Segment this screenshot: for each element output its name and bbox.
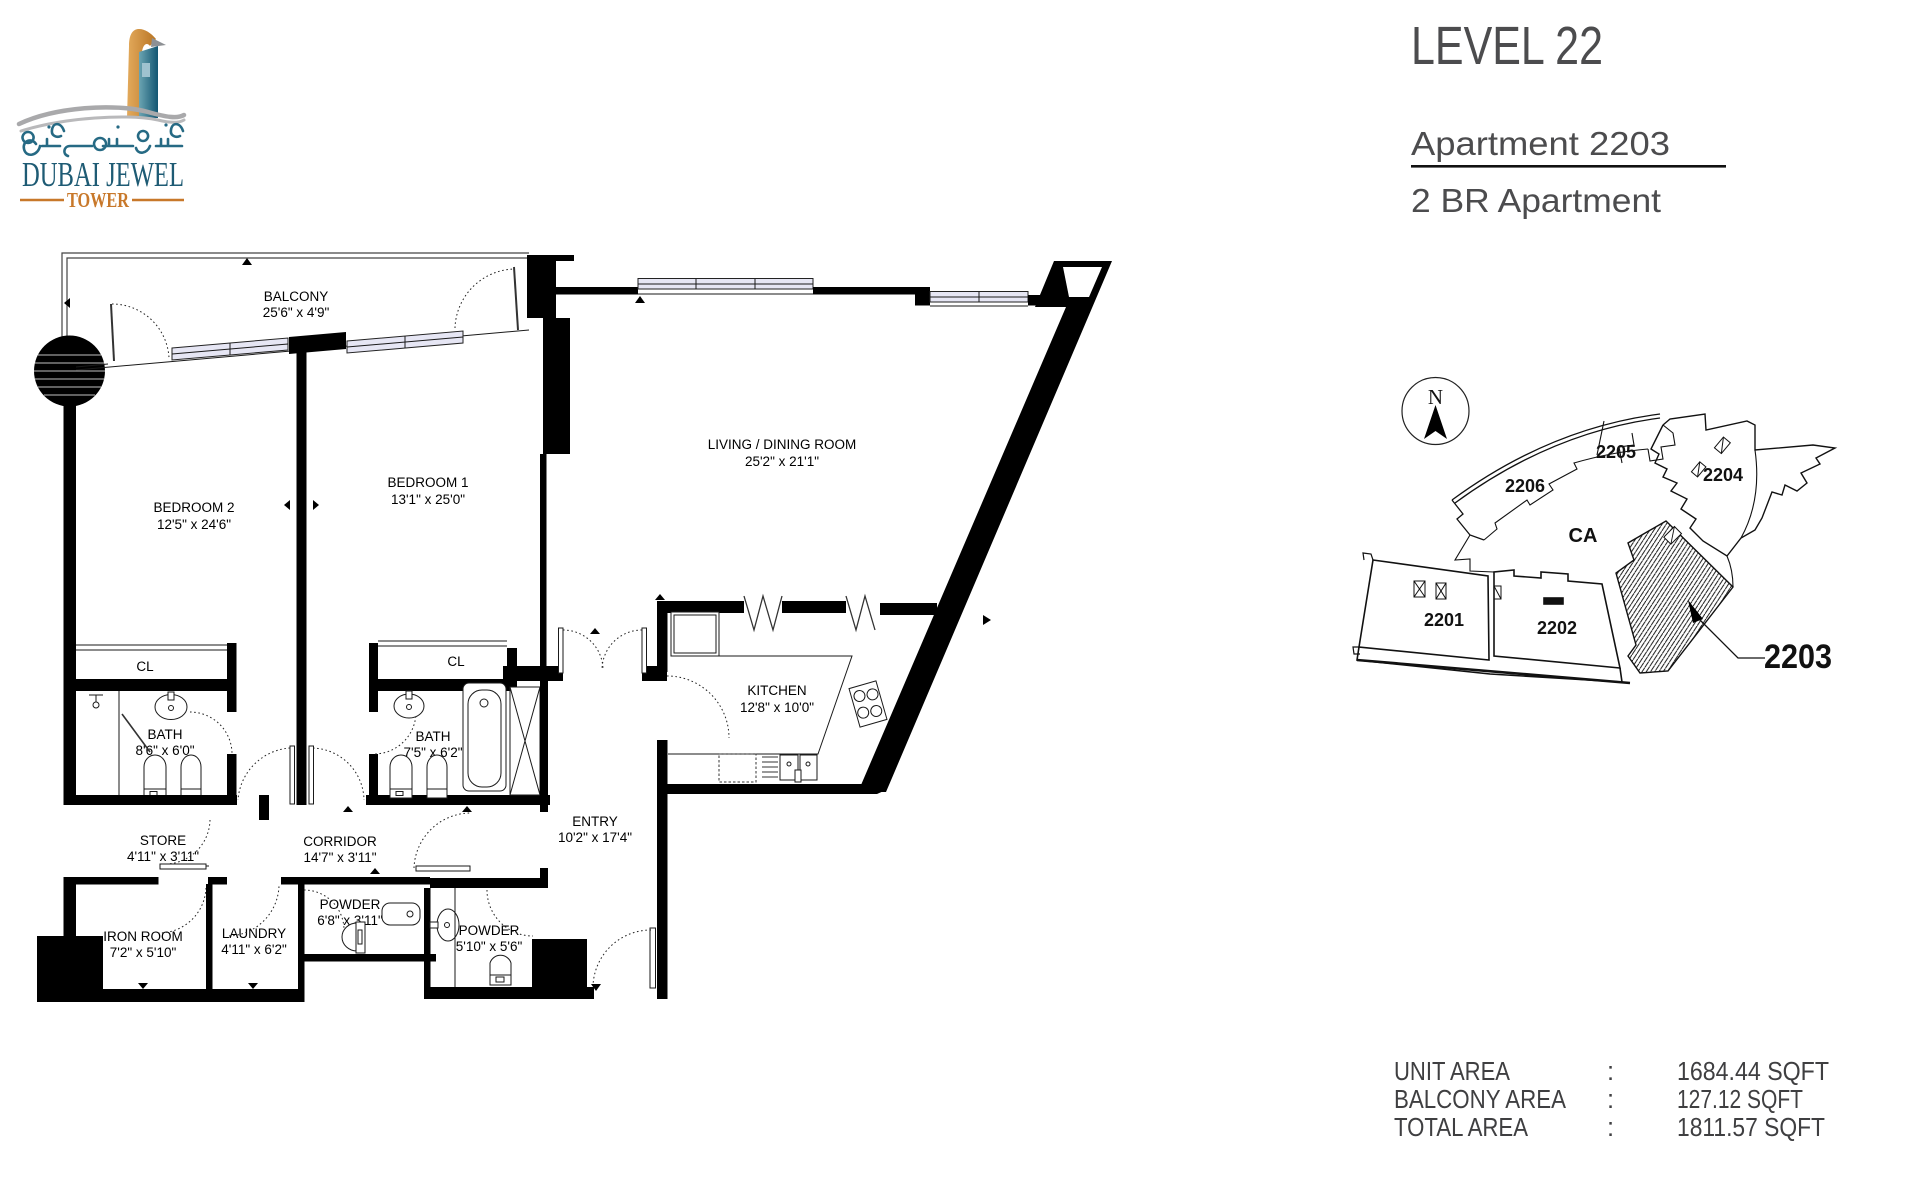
svg-text:1811.57 SQFT: 1811.57 SQFT	[1677, 1114, 1825, 1142]
svg-text:2201: 2201	[1424, 610, 1464, 630]
svg-text:13'1" x 25'0": 13'1" x 25'0"	[391, 492, 465, 507]
svg-text:25'2" x 21'1": 25'2" x 21'1"	[745, 454, 819, 469]
svg-text:12'8" x 10'0": 12'8" x 10'0"	[740, 700, 814, 715]
svg-text:4'11" x 3'11": 4'11" x 3'11"	[127, 849, 199, 864]
svg-text:BALCONY: BALCONY	[264, 289, 329, 304]
svg-text:5'10" x 5'6": 5'10" x 5'6"	[456, 939, 523, 954]
svg-text:CA: CA	[1569, 525, 1598, 547]
svg-text:BEDROOM 2: BEDROOM 2	[153, 500, 234, 515]
svg-text:4'11" x 6'2": 4'11" x 6'2"	[221, 942, 287, 957]
svg-text:2206: 2206	[1505, 476, 1545, 496]
svg-text:7'2" x 5'10": 7'2" x 5'10"	[110, 945, 177, 960]
svg-text:2205: 2205	[1596, 442, 1636, 462]
svg-text:14'7" x 3'11": 14'7" x 3'11"	[303, 850, 376, 865]
svg-text:2 BR Apartment: 2 BR Apartment	[1411, 182, 1661, 219]
svg-text:UNIT AREA: UNIT AREA	[1394, 1058, 1510, 1086]
svg-text:POWDER: POWDER	[320, 897, 381, 912]
svg-text:10'2" x 17'4": 10'2" x 17'4"	[558, 830, 632, 845]
svg-text:12'5" x 24'6": 12'5" x 24'6"	[157, 517, 231, 532]
svg-text:LIVING / DINING ROOM: LIVING / DINING ROOM	[708, 437, 857, 452]
svg-text:STORE: STORE	[140, 833, 186, 848]
svg-text:CL: CL	[447, 654, 465, 669]
svg-text:127.12 SQFT: 127.12 SQFT	[1677, 1086, 1803, 1114]
svg-text:2202: 2202	[1537, 618, 1577, 638]
svg-text::: :	[1607, 1086, 1614, 1114]
svg-text:CORRIDOR: CORRIDOR	[303, 834, 377, 849]
svg-text:TOTAL AREA: TOTAL AREA	[1394, 1114, 1528, 1142]
svg-text:2204: 2204	[1703, 465, 1743, 485]
svg-text:ENTRY: ENTRY	[572, 814, 618, 829]
svg-text::: :	[1607, 1114, 1614, 1142]
svg-text:1684.44 SQFT: 1684.44 SQFT	[1677, 1058, 1829, 1086]
svg-text:2203: 2203	[1764, 638, 1832, 676]
svg-text:LEVEL 22: LEVEL 22	[1411, 16, 1603, 76]
svg-text:CL: CL	[136, 659, 154, 674]
svg-text:KITCHEN: KITCHEN	[747, 683, 806, 698]
svg-text:BATH: BATH	[415, 729, 450, 744]
svg-text::: :	[1607, 1058, 1614, 1086]
svg-text:Apartment 2203: Apartment 2203	[1411, 125, 1670, 162]
svg-text:BALCONY AREA: BALCONY AREA	[1394, 1086, 1566, 1114]
svg-text:TOWER: TOWER	[67, 188, 130, 212]
svg-text:25'6" x 4'9": 25'6" x 4'9"	[263, 305, 330, 320]
svg-text:BATH: BATH	[147, 727, 182, 742]
svg-text:POWDER: POWDER	[459, 923, 520, 938]
svg-text:BEDROOM 1: BEDROOM 1	[387, 475, 468, 490]
